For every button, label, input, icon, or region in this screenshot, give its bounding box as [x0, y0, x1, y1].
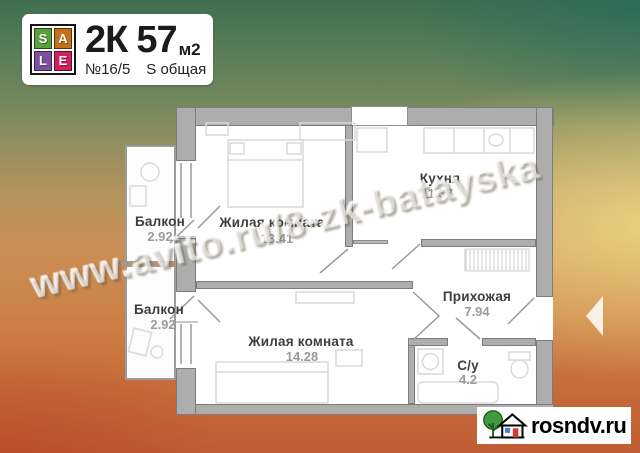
listing-image: Балкон 2.92 Жилая комната 13.41 Кухня 11… — [0, 0, 640, 453]
sale-logo-icon: S A L E — [30, 24, 76, 75]
area-type-label: S общая — [146, 62, 206, 79]
room-area-hallway: 7.94 — [464, 304, 489, 319]
sale-logo-letter-s: S — [34, 28, 52, 49]
badge-text: 2К 57 м2 №16/5 S общая — [85, 21, 206, 79]
house-with-tree-icon — [481, 408, 529, 443]
room-label-balcony-1: Балкон — [135, 214, 185, 229]
room-label-balcony-2: Балкон — [134, 302, 184, 317]
room-area-living-2: 14.28 — [286, 349, 319, 364]
sale-badge: S A L E 2К 57 м2 №16/5 S общая — [22, 14, 213, 85]
room-label-bathroom: С/у — [457, 358, 479, 373]
sale-logo-letter-l: L — [34, 51, 52, 72]
sale-logo-letter-e: E — [54, 51, 72, 72]
total-area: 57 — [136, 21, 176, 59]
room-area-balcony-2: 2.92 — [150, 317, 175, 332]
badge-title-row: 2К 57 м2 — [85, 21, 206, 59]
room-area-bathroom: 4.2 — [459, 372, 477, 387]
rosndv-site-name: rosndv.ru — [531, 413, 626, 439]
rooms-count: 2К — [85, 21, 127, 59]
rosndv-logo: rosndv.ru — [477, 407, 631, 444]
flat-number: №16/5 — [85, 62, 130, 79]
area-unit: м2 — [179, 41, 201, 58]
room-label-living-2: Жилая комната — [248, 334, 353, 349]
badge-subtitle-row: №16/5 S общая — [85, 62, 206, 79]
sale-logo-letter-a: A — [54, 28, 72, 49]
hall-wardrobe-hatch — [465, 249, 529, 271]
room-label-hallway: Прихожая — [443, 289, 511, 304]
prev-image-arrow-icon[interactable] — [586, 296, 603, 336]
